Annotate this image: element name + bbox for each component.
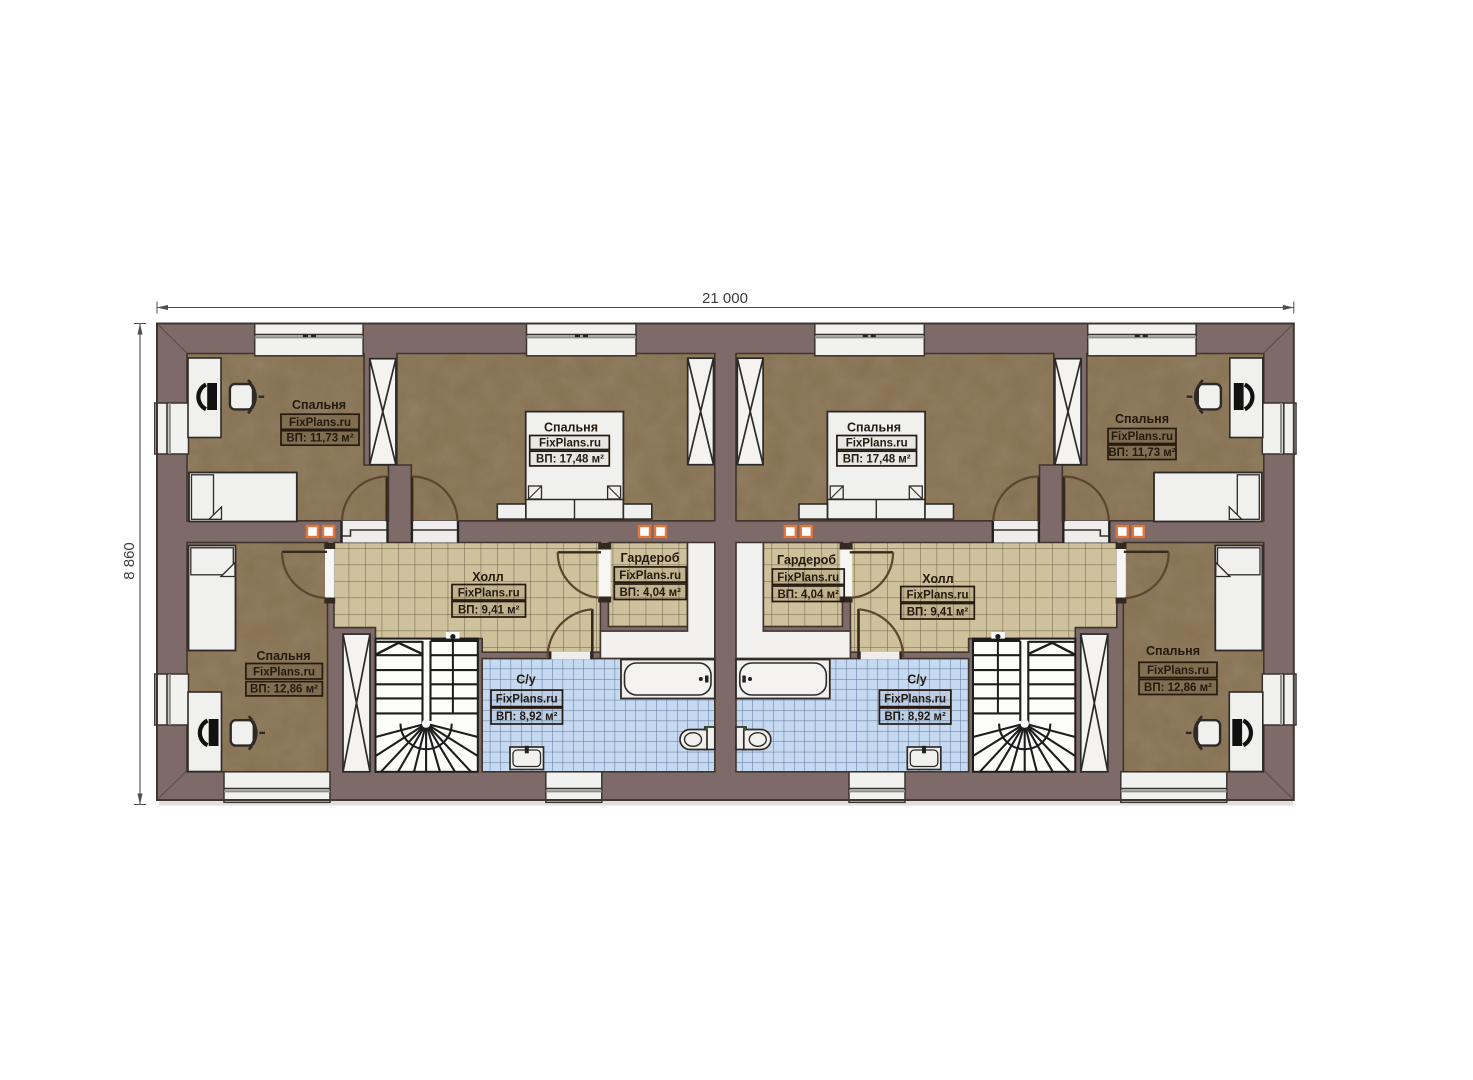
svg-text:ВП: 8,92 м²: ВП: 8,92 м²	[884, 711, 946, 723]
svg-text:Спальня: Спальня	[1115, 412, 1169, 426]
svg-text:FixPlans.ru: FixPlans.ru	[496, 694, 558, 706]
svg-text:Гардероб: Гардероб	[777, 553, 836, 567]
svg-text:FixPlans.ru: FixPlans.ru	[1111, 431, 1173, 443]
svg-text:С/у: С/у	[516, 673, 536, 687]
svg-text:FixPlans.ru: FixPlans.ru	[907, 590, 969, 602]
svg-text:FixPlans.ru: FixPlans.ru	[289, 417, 351, 429]
svg-text:ВП: 12,86 м²: ВП: 12,86 м²	[250, 684, 318, 696]
svg-text:Спальня: Спальня	[292, 398, 346, 412]
svg-text:ВП: 17,48 м²: ВП: 17,48 м²	[536, 454, 604, 466]
svg-text:Холл: Холл	[472, 570, 503, 584]
svg-text:ВП: 4,04 м²: ВП: 4,04 м²	[777, 589, 839, 601]
svg-text:ВП: 12,86 м²: ВП: 12,86 м²	[1144, 682, 1212, 694]
svg-text:ВП: 9,41 м²: ВП: 9,41 м²	[458, 605, 520, 617]
svg-text:ВП: 4,04 м²: ВП: 4,04 м²	[619, 587, 681, 599]
svg-text:С/у: С/у	[907, 673, 927, 687]
svg-text:FixPlans.ru: FixPlans.ru	[458, 588, 520, 600]
svg-text:8 860: 8 860	[121, 542, 138, 580]
svg-text:21 000: 21 000	[702, 290, 748, 307]
svg-text:Холл: Холл	[922, 572, 953, 586]
svg-text:Гардероб: Гардероб	[620, 551, 679, 565]
svg-text:Спальня: Спальня	[257, 649, 311, 663]
svg-text:ВП: 11,73 м²: ВП: 11,73 м²	[286, 433, 353, 445]
svg-text:FixPlans.ru: FixPlans.ru	[1147, 665, 1209, 677]
svg-text:FixPlans.ru: FixPlans.ru	[846, 438, 908, 450]
svg-text:FixPlans.ru: FixPlans.ru	[884, 694, 946, 706]
svg-text:FixPlans.ru: FixPlans.ru	[539, 438, 601, 450]
svg-text:ВП: 17,48 м²: ВП: 17,48 м²	[843, 454, 911, 466]
svg-text:ВП: 8,92 м²: ВП: 8,92 м²	[496, 711, 558, 723]
svg-text:ВП: 9,41 м²: ВП: 9,41 м²	[907, 607, 969, 619]
svg-text:Спальня: Спальня	[847, 421, 901, 435]
svg-text:FixPlans.ru: FixPlans.ru	[619, 570, 681, 582]
svg-text:ВП: 11,73 м²: ВП: 11,73 м²	[1108, 447, 1175, 459]
svg-text:Спальня: Спальня	[1146, 644, 1200, 658]
svg-text:FixPlans.ru: FixPlans.ru	[777, 572, 839, 584]
svg-text:Спальня: Спальня	[544, 421, 598, 435]
svg-text:FixPlans.ru: FixPlans.ru	[253, 667, 315, 679]
